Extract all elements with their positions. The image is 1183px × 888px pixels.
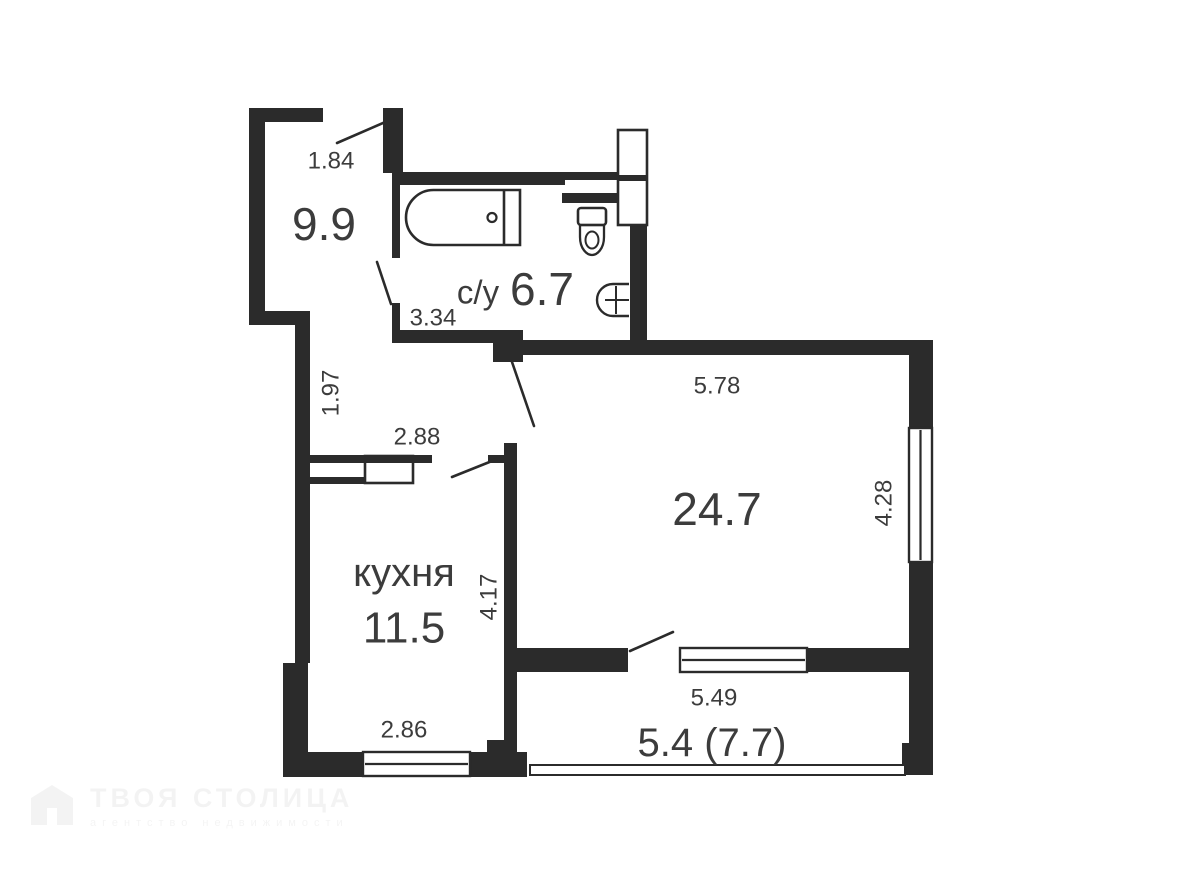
bathroom-duct-bottom-line xyxy=(562,193,622,203)
toilet-icon-tank xyxy=(578,208,606,225)
kitchen-living-wall xyxy=(504,443,517,777)
living-right-wall-upper xyxy=(909,340,933,428)
floor-plan: 1.849.9с/у6.73.341.972.88кухня11.54.172.… xyxy=(0,0,1183,888)
corridor-left-wall xyxy=(295,323,310,663)
kitchen-bottom-right-block xyxy=(487,740,513,777)
living-area: 24.7 xyxy=(672,483,762,535)
bathroom-left-stub xyxy=(392,303,400,332)
living-bottom-wall-left xyxy=(513,648,628,672)
toilet-icon-bowl-inner xyxy=(586,232,599,249)
bathroom-left-wall xyxy=(392,173,400,258)
balcony-dim-width: 5.49 xyxy=(691,685,738,712)
bathroom-right-wall xyxy=(630,222,647,345)
kitchen-dim-height: 4.17 xyxy=(476,574,503,621)
kitchen-door-swing xyxy=(452,459,497,477)
corridor-dim-width: 2.88 xyxy=(394,424,441,451)
bathroom-dim-width: 3.34 xyxy=(410,305,457,332)
balcony-right-foot-block xyxy=(902,743,933,775)
vent-shaft-divider xyxy=(618,175,647,181)
kitchen-name: кухня xyxy=(353,551,455,595)
living-dim-width: 5.78 xyxy=(694,373,741,400)
living-room-door-swing xyxy=(512,362,534,426)
hallway-bottom-jog xyxy=(249,311,310,325)
kitchen-duct-bottom-line xyxy=(308,477,367,484)
bathtub-icon-faucet xyxy=(488,213,497,222)
living-bottom-wall-right xyxy=(807,648,910,672)
bathroom-name: с/у xyxy=(457,274,500,311)
entrance-right-stub xyxy=(383,108,403,173)
corridor-dim-height: 1.97 xyxy=(318,370,345,417)
balcony-railing xyxy=(530,765,905,775)
floor-plan-canvas: 1.849.9с/у6.73.341.972.88кухня11.54.172.… xyxy=(0,0,1183,888)
balcony-left-block xyxy=(513,752,527,777)
balcony-area: 5.4 (7.7) xyxy=(638,721,787,765)
living-dim-height: 4.28 xyxy=(871,480,898,527)
toilet-icon-bowl xyxy=(580,225,604,255)
hallway-dim-width: 1.84 xyxy=(308,148,355,175)
kitchen-dim-width: 2.86 xyxy=(381,717,428,744)
bathroom-duct-top-line xyxy=(562,172,620,180)
hallway-area: 9.9 xyxy=(292,198,356,250)
hallway-left-wall xyxy=(249,108,265,325)
bathroom-door-swing xyxy=(377,262,391,304)
entrance-door-swing xyxy=(337,123,383,143)
kitchen-area: 11.5 xyxy=(363,604,445,653)
bathroom-area: 6.7 xyxy=(510,263,574,315)
bathroom-top-wall xyxy=(392,172,565,185)
kitchen-top-wall xyxy=(308,455,432,463)
balcony-door-swing xyxy=(630,632,673,651)
living-top-wall xyxy=(513,340,933,355)
